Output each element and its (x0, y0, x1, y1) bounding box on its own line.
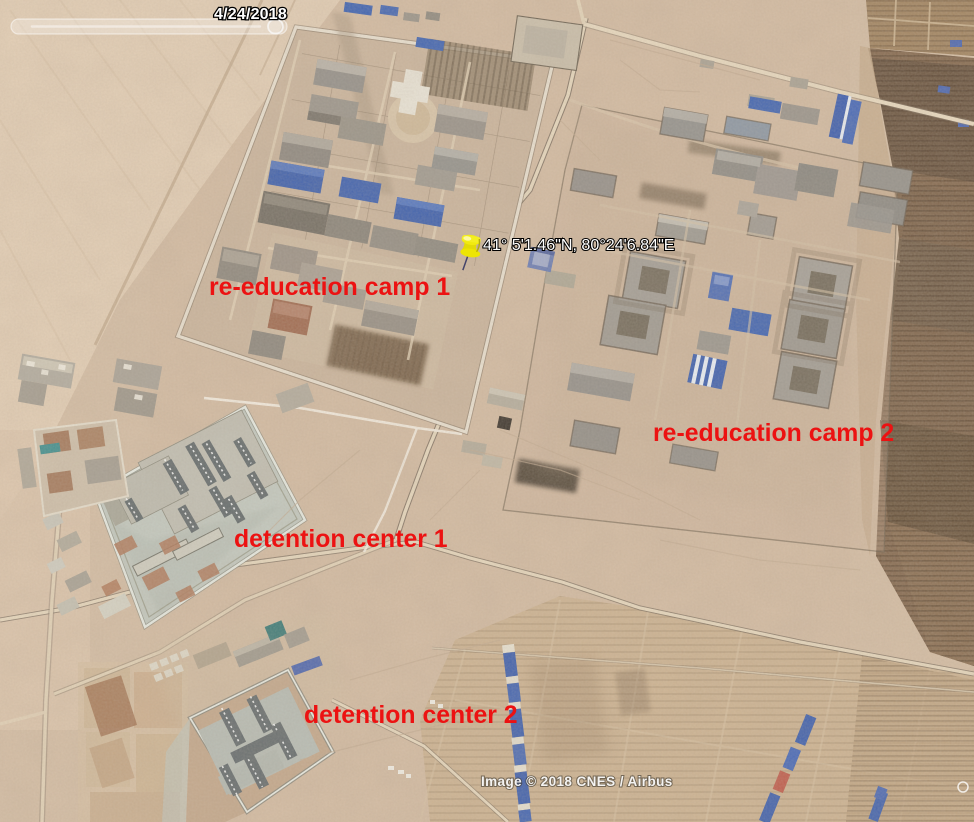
svg-text:re-education camp 1: re-education camp 1 (209, 274, 450, 301)
svg-text:detention center 2: detention center 2 (304, 702, 518, 729)
svg-text:Image © 2018 CNES / Airbus: Image © 2018 CNES / Airbus (481, 774, 673, 789)
svg-text:41° 5'1.46"N, 80°24'6.84"E: 41° 5'1.46"N, 80°24'6.84"E (483, 236, 675, 254)
svg-text:re-education camp 2: re-education camp 2 (653, 420, 894, 447)
svg-text:detention center 1: detention center 1 (234, 526, 448, 553)
svg-text:4/24/2018: 4/24/2018 (214, 6, 287, 23)
